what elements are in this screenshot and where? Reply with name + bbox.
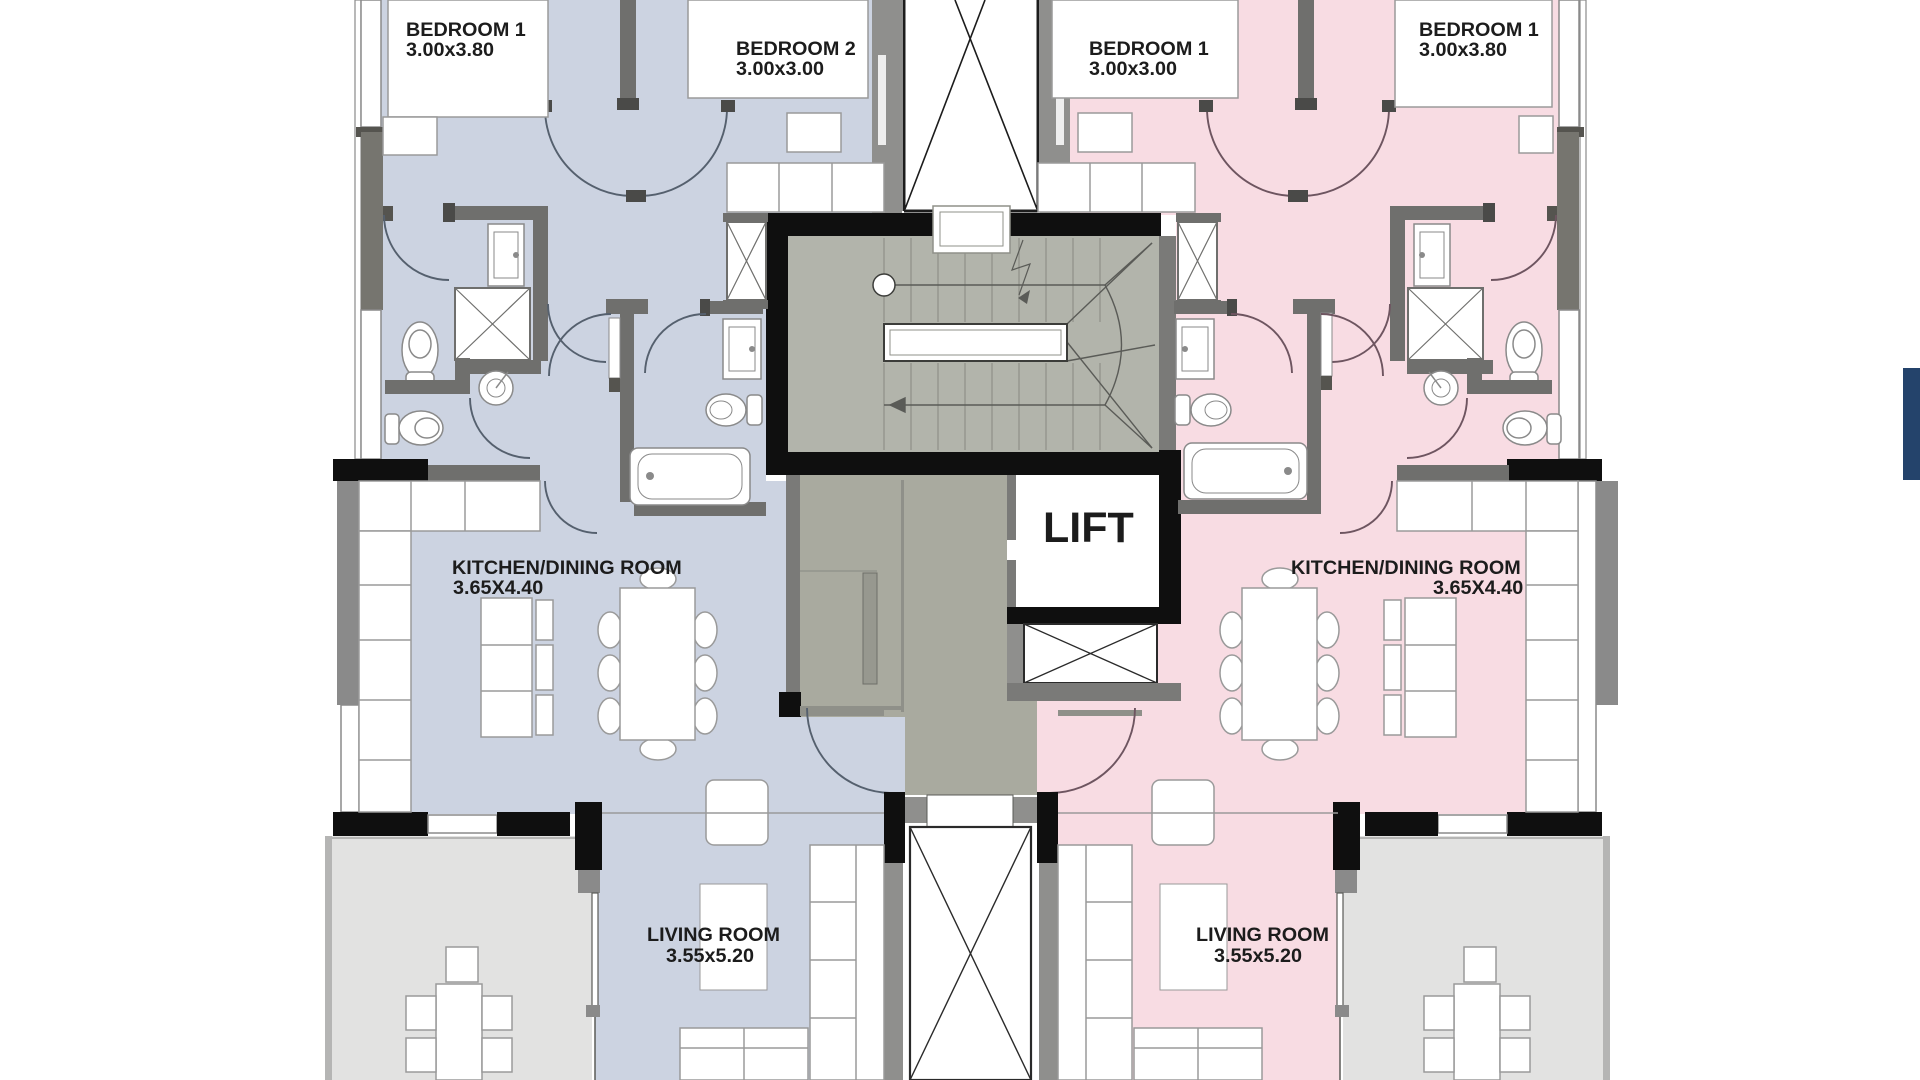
svg-text:3.65X4.40: 3.65X4.40	[453, 577, 543, 599]
svg-text:LIFT: LIFT	[1043, 504, 1134, 552]
svg-text:3.00x3.80: 3.00x3.80	[406, 39, 494, 61]
svg-text:3.00x3.80: 3.00x3.80	[1419, 39, 1507, 61]
svg-text:3.55x5.20: 3.55x5.20	[1214, 945, 1302, 967]
svg-text:BEDROOM 1: BEDROOM 1	[1419, 19, 1539, 41]
svg-text:3.00x3.00: 3.00x3.00	[1089, 58, 1177, 80]
svg-text:LIVING ROOM: LIVING ROOM	[1196, 924, 1329, 946]
svg-text:BEDROOM 1: BEDROOM 1	[1089, 38, 1209, 60]
svg-text:BEDROOM 1: BEDROOM 1	[406, 19, 526, 41]
svg-text:LIVING ROOM: LIVING ROOM	[647, 924, 780, 946]
svg-text:3.00x3.00: 3.00x3.00	[736, 58, 824, 80]
svg-text:3.55x5.20: 3.55x5.20	[666, 945, 754, 967]
svg-text:KITCHEN/DINING ROOM: KITCHEN/DINING ROOM	[452, 557, 682, 579]
svg-text:3.65X4.40: 3.65X4.40	[1433, 577, 1523, 599]
svg-text:KITCHEN/DINING ROOM: KITCHEN/DINING ROOM	[1291, 557, 1521, 579]
svg-text:BEDROOM 2: BEDROOM 2	[736, 38, 856, 60]
